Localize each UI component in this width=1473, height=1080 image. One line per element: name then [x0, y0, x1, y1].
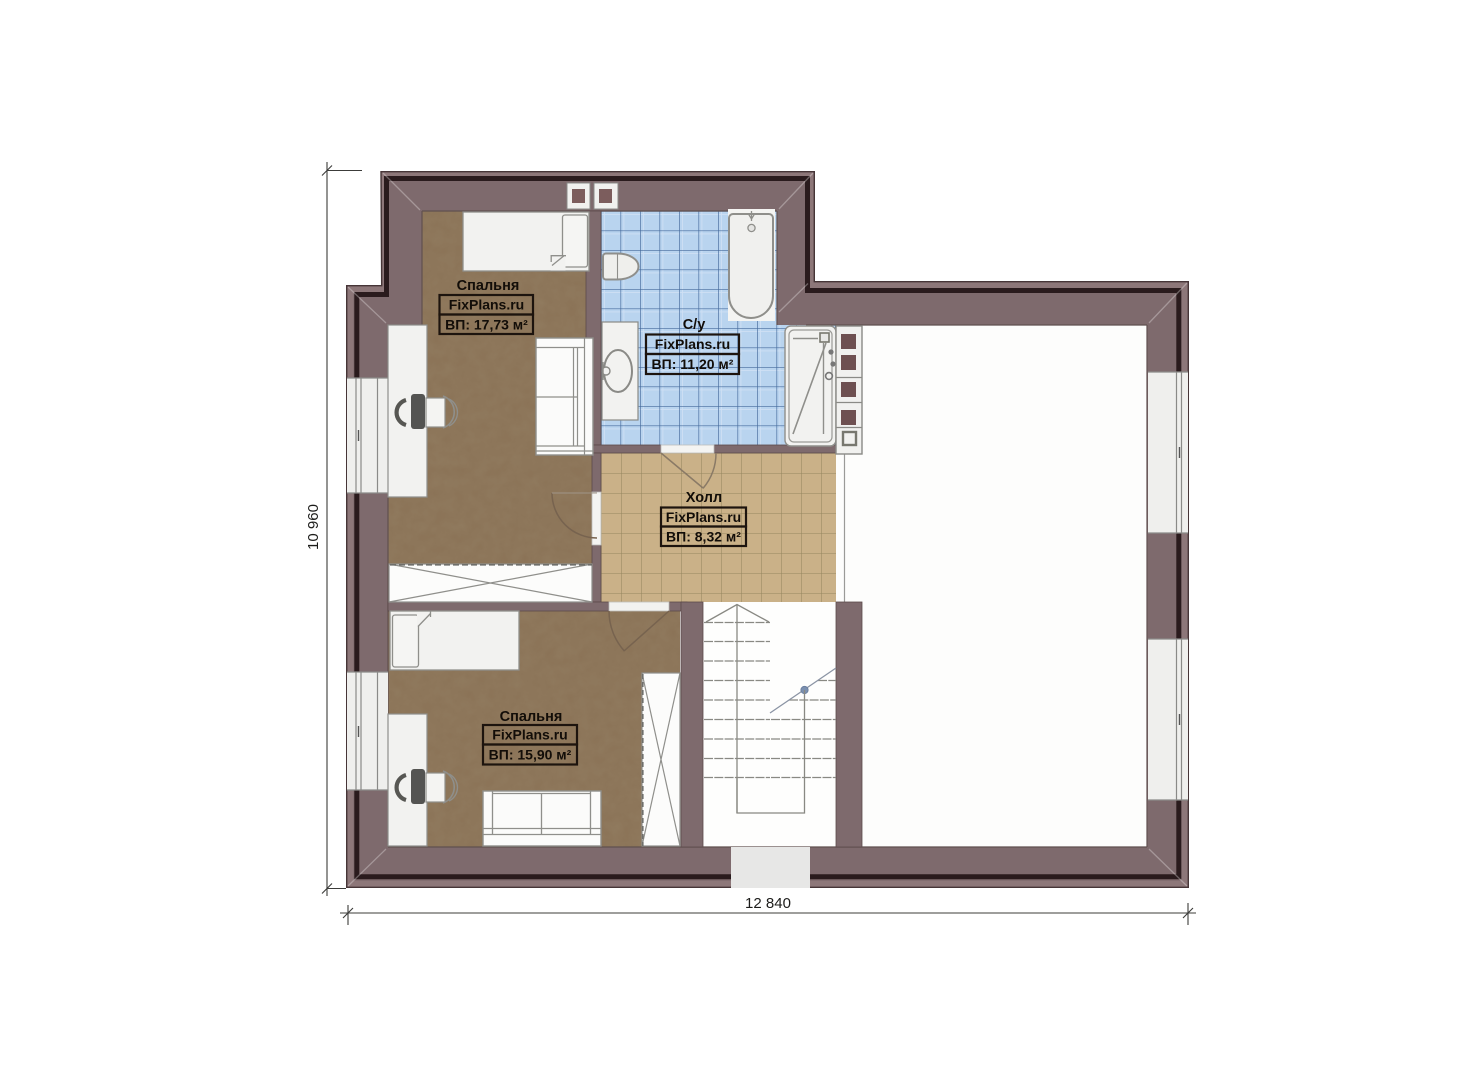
svg-text:ВП: 8,32 м²: ВП: 8,32 м² — [666, 529, 741, 545]
svg-text:12 840: 12 840 — [745, 895, 791, 912]
svg-text:FixPlans.ru: FixPlans.ru — [655, 336, 730, 352]
svg-text:FixPlans.ru: FixPlans.ru — [666, 509, 741, 525]
svg-text:Спальня: Спальня — [500, 709, 563, 725]
svg-text:С/у: С/у — [683, 317, 706, 333]
svg-text:ВП: 17,73 м²: ВП: 17,73 м² — [445, 317, 528, 333]
svg-text:FixPlans.ru: FixPlans.ru — [492, 727, 567, 743]
svg-text:ВП: 15,90 м²: ВП: 15,90 м² — [489, 747, 572, 763]
svg-text:Холл: Холл — [686, 490, 722, 506]
svg-text:Спальня: Спальня — [457, 278, 520, 294]
svg-text:ВП: 11,20 м²: ВП: 11,20 м² — [652, 356, 734, 372]
svg-text:10 960: 10 960 — [305, 504, 322, 550]
svg-text:FixPlans.ru: FixPlans.ru — [449, 297, 524, 313]
